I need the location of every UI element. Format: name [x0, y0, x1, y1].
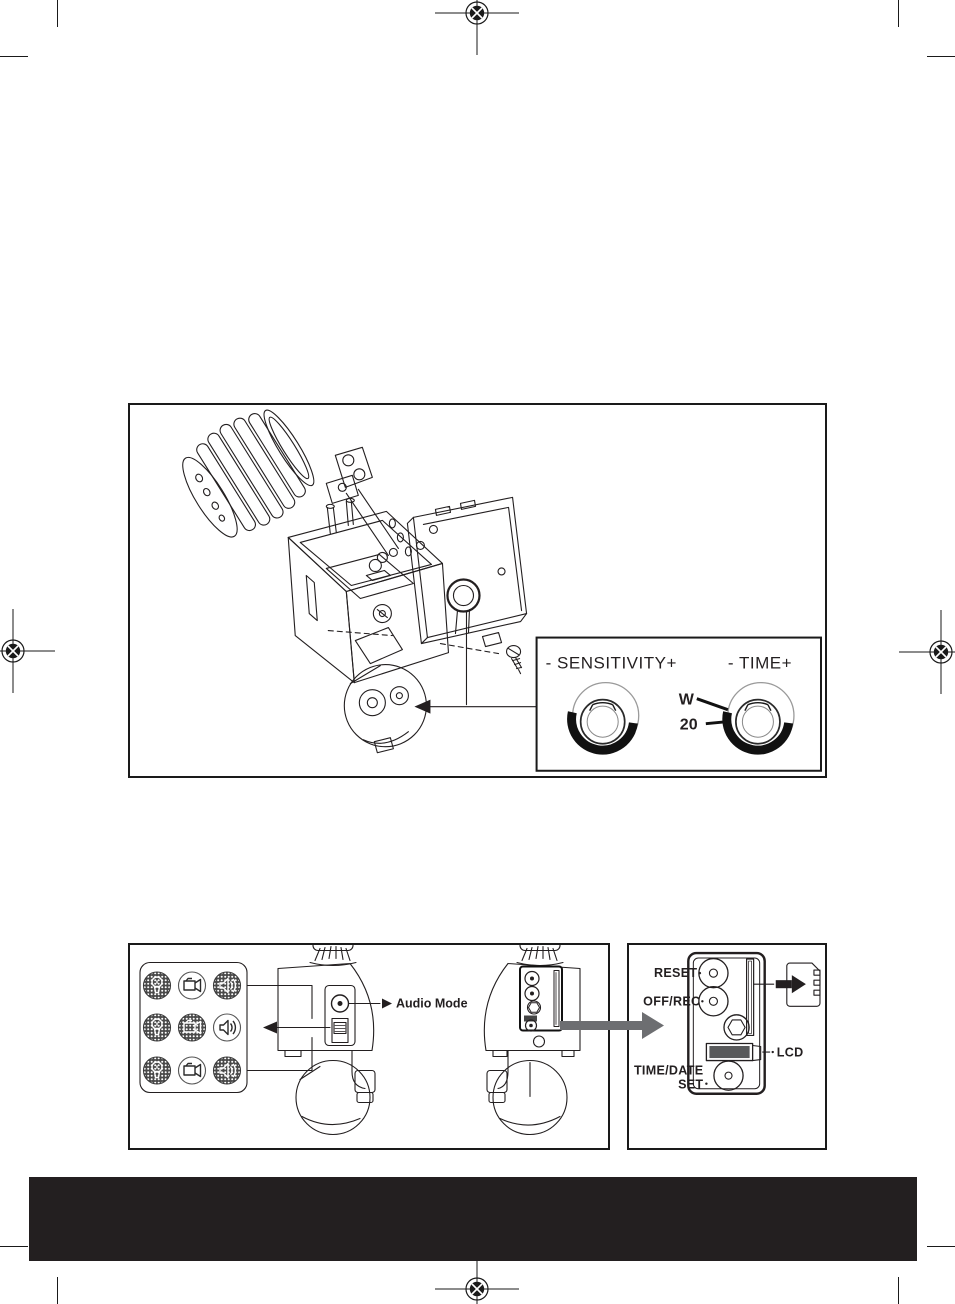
reset-button-drawing — [699, 959, 728, 988]
reset-label: RESET — [654, 966, 697, 980]
off-rec-label: OFF/REC — [643, 994, 700, 1008]
light-icon — [144, 1014, 171, 1041]
footer-bar — [29, 1177, 917, 1261]
time-date-label-line2: SET — [678, 1078, 703, 1092]
speaker-icon — [214, 972, 241, 999]
mode-grid — [140, 963, 330, 1093]
alignment-dashed-lines — [328, 631, 498, 654]
dial-inset-panel: - SENSITIVITY+ - TIME+ — [537, 638, 821, 771]
floodlight-head-drawing — [169, 405, 326, 551]
screw-drawing — [507, 646, 522, 674]
registration-mark-top — [427, 0, 527, 63]
crop-mark-bottom-left-v — [57, 1277, 58, 1304]
time-date-label-line1: TIME/DATE — [634, 1064, 703, 1078]
time-date-set-button-drawing — [714, 1061, 743, 1090]
light-icon — [144, 972, 171, 999]
lcd-leader-dot — [772, 1051, 774, 1053]
registration-mark-right — [891, 602, 955, 702]
time-dial-w-tick-label: W — [679, 691, 695, 709]
crop-mark-top-left-h — [0, 56, 28, 57]
lcd-drawing — [706, 1043, 760, 1060]
time-label: - TIME+ — [728, 654, 792, 673]
device-side-view-left — [278, 945, 375, 1135]
reset-leader-dot — [699, 972, 701, 974]
panel-zoom-arrow — [560, 1008, 666, 1043]
audio-mode-label: Audio Mode — [396, 997, 468, 1011]
audio-mode-button-drawing — [332, 995, 349, 1012]
speaker-icon — [214, 1057, 241, 1084]
camera-icon — [179, 1014, 206, 1041]
light-icon — [144, 1057, 171, 1084]
lcd-label: LCD — [777, 1046, 804, 1060]
camera-ball-drawing — [344, 628, 426, 753]
time-dial-20-tick-label: 20 — [680, 716, 698, 734]
crop-mark-bottom-right-v — [898, 1277, 899, 1304]
rear-control-panel-drawing — [520, 967, 562, 1032]
time-date-leader-dot — [705, 1082, 707, 1084]
insert-direction-arrow — [776, 975, 806, 993]
twenty-tick-line — [706, 722, 727, 724]
mounting-arm-drawing — [326, 447, 411, 571]
crop-mark-bottom-right-h — [927, 1246, 955, 1247]
figure-installation: - SENSITIVITY+ - TIME+ — [128, 403, 827, 778]
sd-card-icon — [776, 963, 820, 1006]
crop-mark-top-right-h — [927, 56, 955, 57]
camera-icon — [179, 1057, 206, 1084]
audio-mode-callout: Audio Mode — [349, 997, 468, 1011]
registration-mark-left — [0, 601, 63, 701]
audio-mode-arrowhead — [382, 999, 392, 1009]
inset-pointer-arrow — [414, 700, 536, 714]
crop-mark-top-right-v — [898, 0, 899, 27]
manual-page: - SENSITIVITY+ - TIME+ — [0, 0, 955, 1304]
sensitivity-label: - SENSITIVITY+ — [546, 654, 677, 673]
mode-slide-switch-drawing — [332, 1019, 348, 1043]
figure-control-panel: RESET OFF/REC LCD TIME/DATE SET — [627, 943, 827, 1150]
off-rec-leader-dot — [701, 1000, 703, 1002]
card-slot-drawing — [747, 959, 754, 1035]
switch-pointer-arrowhead — [263, 1022, 277, 1034]
figure-audio-mode: Audio Mode — [128, 943, 610, 1150]
lock-nut-drawing — [724, 1015, 749, 1040]
crop-mark-bottom-left-h — [0, 1246, 28, 1247]
speaker-icon — [214, 1014, 241, 1041]
camera-icon — [179, 972, 206, 999]
crop-mark-top-left-v — [57, 0, 58, 27]
